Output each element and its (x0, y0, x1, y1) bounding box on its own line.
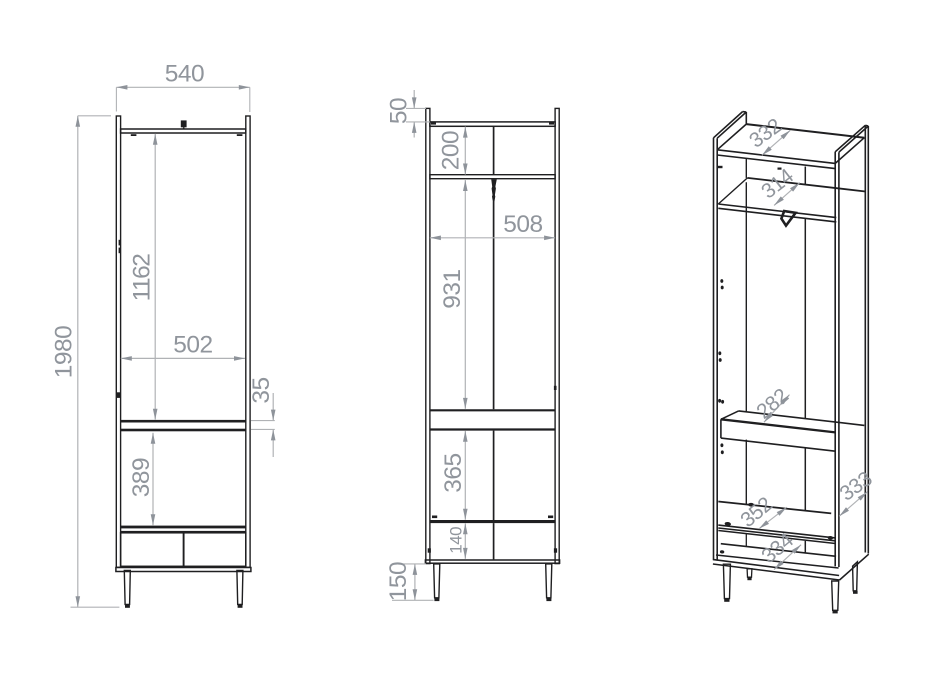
svg-text:540: 540 (165, 61, 204, 88)
svg-text:1980: 1980 (51, 326, 78, 379)
svg-text:389: 389 (128, 458, 155, 497)
svg-text:931: 931 (439, 269, 466, 308)
svg-text:1162: 1162 (128, 254, 155, 302)
svg-text:50: 50 (385, 98, 412, 124)
svg-text:150: 150 (385, 562, 412, 601)
svg-text:140: 140 (446, 527, 465, 554)
svg-text:502: 502 (173, 331, 212, 358)
svg-text:35: 35 (248, 377, 275, 403)
svg-text:508: 508 (503, 211, 542, 238)
svg-text:200: 200 (438, 131, 465, 170)
svg-text:365: 365 (440, 453, 467, 492)
